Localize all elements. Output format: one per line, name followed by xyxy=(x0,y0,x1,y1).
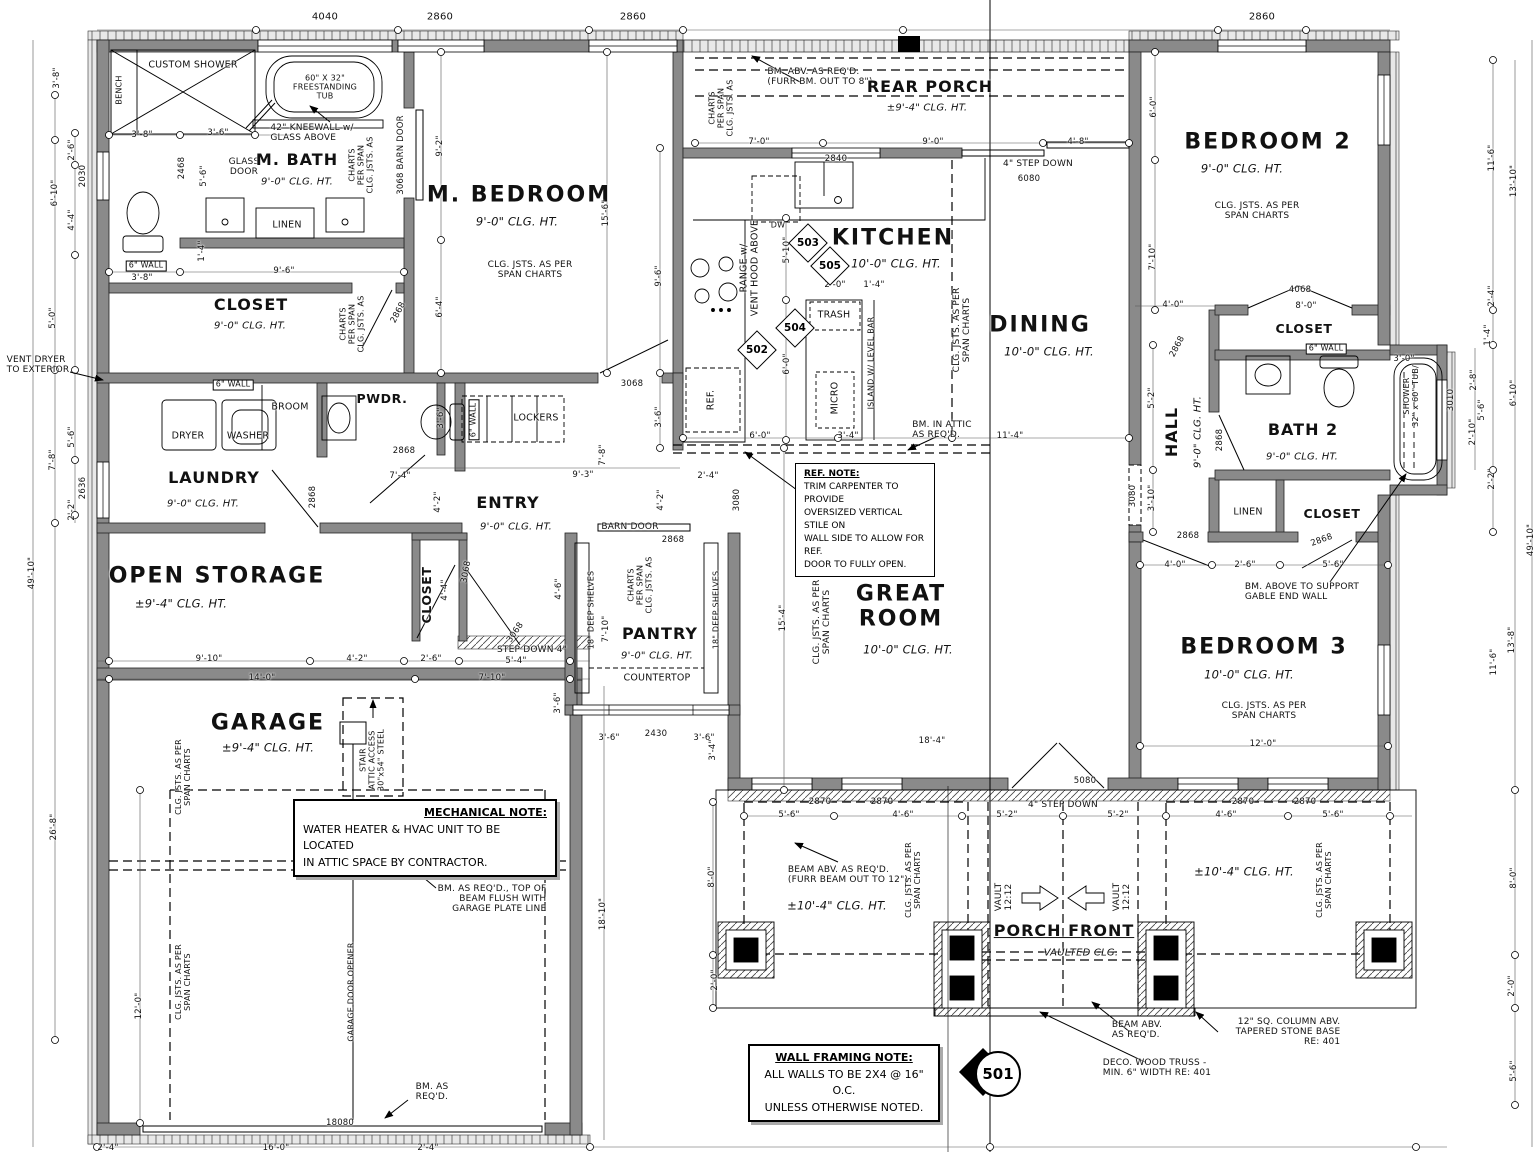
window-3010: 3010 xyxy=(1447,389,1457,411)
door-5080: 5080 xyxy=(1074,777,1096,787)
fixture-shelves: 18" DEEP SHELVES xyxy=(713,571,722,650)
fixture-linen: LINEN xyxy=(272,221,301,232)
window-2840: 2840 xyxy=(825,155,847,165)
fixture-gdo: GARAGE DOOR OPENER xyxy=(348,942,357,1041)
dim: 18'-10" xyxy=(599,898,609,930)
note-vault: VAULT 12:12 xyxy=(1112,883,1132,912)
clg-porch-right: ±10'-4" CLG. HT. xyxy=(1194,866,1294,879)
dim: 6'-0" xyxy=(1150,96,1160,117)
dim: 16'-0" xyxy=(263,1144,290,1152)
dim: 5'-0" xyxy=(49,307,59,328)
note-span-charts: CLG. JSTS. AS PER SPAN CHARTS xyxy=(812,580,832,665)
dim: 11'-6" xyxy=(1490,649,1500,676)
note-beam-abv: BEAM ABV. AS REQ'D. xyxy=(1112,1020,1162,1040)
fixture-trash: TRASH xyxy=(818,311,851,322)
dim: 11'-6" xyxy=(1488,145,1498,172)
clg-garage: ±9'-4" CLG. HT. xyxy=(222,742,314,755)
note-beam-rear: BM. ABV. AS REQ'D. (FURR BM. OUT TO 8") xyxy=(767,67,872,87)
window-2860: 2860 xyxy=(1249,11,1275,22)
door-2868: 2868 xyxy=(1169,335,1188,359)
fixture-ref: REF. xyxy=(707,390,718,410)
dim: 7'-10" xyxy=(602,616,612,643)
dim: 9'-2" xyxy=(436,135,446,156)
door-18080: 18080 xyxy=(326,1119,354,1129)
dim: 12'-0" xyxy=(1250,740,1277,750)
dim: 3'-6" xyxy=(554,692,564,713)
mechanical-note-box: MECHANICAL NOTE: WATER HEATER & HVAC UNI… xyxy=(293,799,557,877)
tag-6in-wall: 6" WALL xyxy=(213,380,254,391)
dim: 1'-4" xyxy=(863,281,884,291)
dim: 12'-0" xyxy=(135,993,145,1020)
room-open-storage: OPEN STORAGE xyxy=(109,565,326,590)
dim: 6'-10" xyxy=(1510,380,1520,407)
dim: 15'-6" xyxy=(602,200,612,227)
door-2868: 2868 xyxy=(309,486,319,508)
note-beam-gable: BM. ABOVE TO SUPPORT GABLE END WALL xyxy=(1245,582,1359,602)
room-entry-closet: CLOSET xyxy=(420,567,434,624)
note-beam-garage: BM. AS REQ'D., TOP OF BEAM FLUSH WITH GA… xyxy=(438,884,547,914)
door-3080: 3080 xyxy=(733,489,743,511)
door-3068-barn: 3068 BARN DOOR xyxy=(397,115,407,195)
dim: 13'-10" xyxy=(1510,165,1520,197)
note-step-down: 4" STEP DOWN xyxy=(1003,159,1073,169)
dim: 3'-6" xyxy=(655,406,665,427)
dim: 2'-8" xyxy=(1470,369,1480,390)
dim: 1'-4" xyxy=(198,240,208,261)
dim: 7'-4" xyxy=(389,472,410,482)
dim: 8'-0" xyxy=(708,866,718,887)
note-span-charts: CLG. JSTS. AS PER SPAN CHARTS xyxy=(175,739,193,815)
fixture-custom-shower: CUSTOM SHOWER xyxy=(148,61,237,72)
room-entry: ENTRY xyxy=(476,494,539,512)
dim: 2'-0" xyxy=(711,969,721,990)
clg-bath2: 9'-0" CLG. HT. xyxy=(1266,451,1338,462)
note-vault: VAULT 12:12 xyxy=(994,883,1014,912)
fixture-shelves: 18" DEEP SHELVES xyxy=(588,571,597,650)
room-kitchen: KITCHEN xyxy=(832,227,954,252)
door-3068: 3068 xyxy=(506,621,527,645)
note-span-charts: CHARTS PER SPAN CLG. JSTS. AS xyxy=(340,296,367,353)
dim: 4'-6" xyxy=(892,811,913,821)
dim: 3'-6" xyxy=(598,734,619,744)
dim: 5'-6" xyxy=(1510,1060,1520,1081)
room-bed3-closet: CLOSET xyxy=(1304,507,1361,521)
ref-note-box: REF. NOTE: TRIM CARPENTER TO PROVIDE OVE… xyxy=(795,463,935,577)
ref-note-line: TRIM CARPENTER TO PROVIDE xyxy=(804,481,926,507)
room-garage: GARAGE xyxy=(211,712,325,737)
ref-note-line: DOOR TO FULLY OPEN. xyxy=(804,559,926,572)
tag-6in-wall: 6" WALL xyxy=(469,400,480,441)
mechanical-note-title: MECHANICAL NOTE: xyxy=(303,805,547,822)
door-3080: 3080 xyxy=(1129,485,1139,507)
dim: 6'-10" xyxy=(51,180,61,207)
window-2430: 2430 xyxy=(645,730,667,740)
dim: 14'-0" xyxy=(249,674,276,684)
dim: 9'-6" xyxy=(655,265,665,286)
dim: 13'-8" xyxy=(1508,627,1518,654)
window-2860: 2860 xyxy=(620,11,646,22)
dim: 5'-6" xyxy=(68,426,78,447)
note-span-charts: CHARTS PER SPAN CLG. JSTS. AS xyxy=(628,557,655,614)
dim: 49'-10" xyxy=(1527,524,1536,556)
door-2868: 2868 xyxy=(1177,532,1199,542)
fixture-shower-tub: SHOWER 32" x 60" TUB/ xyxy=(1403,365,1421,427)
dim: 3'-4" xyxy=(837,432,858,442)
note-span-charts: CLG. JSTS. AS PER SPAN CHARTS xyxy=(1316,842,1334,918)
window-4040: 4040 xyxy=(312,11,338,22)
fixture-bench: BENCH xyxy=(116,75,125,104)
fixture-island: ISLAND W/ LEVEL BAR xyxy=(868,317,877,410)
door-3068: 3068 xyxy=(621,380,643,390)
dim: 5'-4" xyxy=(505,657,526,667)
room-bedroom2: BEDROOM 2 xyxy=(1184,131,1351,156)
window-2870: 2870 xyxy=(809,798,831,808)
note-span-charts: CLG. JSTS. AS PER SPAN CHARTS xyxy=(1222,701,1307,721)
fixture-range: RANGE w/ VENT HOOD ABOVE xyxy=(739,220,760,317)
room-bath2: BATH 2 xyxy=(1268,421,1338,439)
clg-m-closet: 9'-0" CLG. HT. xyxy=(214,320,286,331)
dim: 15'-4" xyxy=(779,605,789,632)
door-3068: 3068 xyxy=(460,560,473,584)
clg-pantry: 9'-0" CLG. HT. xyxy=(621,650,693,661)
tag-6in-wall: 6" WALL xyxy=(126,261,167,272)
ref-note-line: WALL SIDE TO ALLOW FOR REF. xyxy=(804,533,926,559)
door-2468: 2468 xyxy=(178,157,188,179)
room-hall: HALL xyxy=(1163,407,1181,457)
clg-entry: 9'-0" CLG. HT. xyxy=(480,521,552,532)
room-powder: PWDR. xyxy=(357,392,408,406)
floor-plan-sheet: REF. NOTE: TRIM CARPENTER TO PROVIDE OVE… xyxy=(0,0,1536,1152)
dim: 3'-8" xyxy=(131,131,152,141)
note-beam-porch: BEAM ABV. AS REQ'D. (FURR BEAM OUT TO 12… xyxy=(788,865,908,885)
clg-hall: 9'-0" CLG. HT. xyxy=(1192,396,1203,468)
wall-framing-note-line: ALL WALLS TO BE 2X4 @ 16" O.C. xyxy=(758,1067,930,1100)
door-2868: 2868 xyxy=(662,536,684,546)
dim: 8'-0" xyxy=(1295,302,1316,312)
door-2868: 2868 xyxy=(1310,533,1334,550)
dim: 2'-10" xyxy=(1469,419,1479,446)
note-attic-access: STAIR ATTIC ACCESS 30"x54" STEEL xyxy=(360,729,387,791)
clg-bedroom3: 10'-0" CLG. HT. xyxy=(1204,669,1294,682)
dim: 7'-0" xyxy=(748,138,769,148)
dim: 3'-6" xyxy=(207,129,228,139)
dim: 4'-2" xyxy=(434,491,444,512)
door-2868: 2868 xyxy=(1216,429,1226,451)
dim: 3'-4" xyxy=(709,739,719,760)
note-glass-door: GLASS DOOR xyxy=(229,157,260,177)
note-beam-attic: BM. IN ATTIC AS REQ'D. xyxy=(912,420,972,440)
dim: 4'-6" xyxy=(1215,811,1236,821)
note-span-charts: CHARTS PER SPAN CLG. JSTS. AS xyxy=(709,80,736,137)
wall-framing-note-line: UNLESS OTHERWISE NOTED. xyxy=(758,1100,930,1117)
door-barn: BARN DOOR xyxy=(601,522,658,532)
dim: 3'-6" xyxy=(437,407,447,428)
room-pantry: PANTRY xyxy=(622,625,698,643)
room-rear-porch: REAR PORCH xyxy=(867,78,993,96)
clg-porch-left: ±10'-4" CLG. HT. xyxy=(787,900,887,913)
fixture-tub: 60" X 32" FREESTANDING TUB xyxy=(293,75,357,102)
dim: 2'-2" xyxy=(1488,468,1498,489)
dim: 2'-4" xyxy=(1488,285,1498,306)
window-2870: 2870 xyxy=(1294,798,1316,808)
fixture-dw: DW xyxy=(771,222,785,231)
dim: 2'-4" xyxy=(697,472,718,482)
tag-6in-wall: 6" WALL xyxy=(1306,344,1347,355)
dim: 3'-0" xyxy=(1393,355,1414,365)
clg-bedroom2: 9'-0" CLG. HT. xyxy=(1201,163,1283,176)
clg-great-room: 10'-0" CLG. HT. xyxy=(863,644,953,657)
dim: 4'-4" xyxy=(68,209,78,230)
mechanical-note-line: IN ATTIC SPACE BY CONTRACTOR. xyxy=(303,855,547,872)
dim: 2'-4" xyxy=(417,1144,438,1152)
dim: 9'-0" xyxy=(922,138,943,148)
dim: 5'-2" xyxy=(1148,387,1158,408)
clg-rear-porch: ±9'-4" CLG. HT. xyxy=(887,102,968,113)
room-bed2-closet: CLOSET xyxy=(1276,322,1333,336)
note-step-down: STEP DOWN 4" xyxy=(497,645,567,655)
note-kneewall: 42" KNEEWALL w/ GLASS ABOVE xyxy=(270,123,353,143)
fixture-broom: BROOM xyxy=(271,403,308,414)
dim: 4'-2" xyxy=(346,655,367,665)
dim: 4'-8" xyxy=(1067,138,1088,148)
window-2870: 2870 xyxy=(871,798,893,808)
note-column: 12" SQ. COLUMN ABV. TAPERED STONE BASE R… xyxy=(1236,1017,1341,1047)
dim: 7'-10" xyxy=(1149,244,1159,271)
fixture-dryer: DRYER xyxy=(172,432,205,443)
door-2868: 2868 xyxy=(393,447,415,457)
dim: 6'-0" xyxy=(783,353,793,374)
dim: 2'-4" xyxy=(97,1144,118,1152)
fixture-micro: MICRO xyxy=(831,382,842,415)
note-span-charts: CLG. JSTS. AS PER SPAN CHARTS xyxy=(175,944,193,1020)
clg-kitchen: 10'-0" CLG. HT. xyxy=(851,258,941,271)
window-2030: 2030 xyxy=(79,165,89,187)
dim: 5'-6" xyxy=(778,811,799,821)
dim: 3'-8" xyxy=(53,67,63,88)
note-span-charts: CLG. JSTS. AS PER SPAN CHARTS xyxy=(1215,201,1300,221)
door-4068: 4068 xyxy=(1289,286,1311,296)
note-span-charts: CLG. JSTS. AS PER SPAN CHARTS xyxy=(952,288,972,373)
note-span-charts: CHARTS PER SPAN CLG. JSTS. AS xyxy=(349,137,376,194)
dim: 5'-6" xyxy=(1322,561,1343,571)
room-m-bath: M. BATH xyxy=(256,151,338,169)
ref-note-title: REF. NOTE: xyxy=(804,468,926,481)
dim: 2'-2" xyxy=(68,499,78,520)
fixture-lockers: LOCKERS xyxy=(513,414,558,425)
room-great-room: GREAT ROOM xyxy=(856,582,946,631)
window-2870: 2870 xyxy=(1232,798,1254,808)
note-span-charts: CLG. JSTS. AS PER SPAN CHARTS xyxy=(905,842,923,918)
room-m-closet: CLOSET xyxy=(214,296,288,314)
door-6080: 6080 xyxy=(1018,175,1040,185)
dim: 5'-6" xyxy=(1478,399,1488,420)
dim: 5'-2" xyxy=(1107,811,1128,821)
clg-dining: 10'-0" CLG. HT. xyxy=(1004,346,1094,359)
dim: 9'-3" xyxy=(572,471,593,481)
dim: 7'-8" xyxy=(49,449,59,470)
dim: 49'-10" xyxy=(28,557,38,589)
clg-m-bath: 9'-0" CLG. HT. xyxy=(261,176,333,187)
dim: 6'-0" xyxy=(749,432,770,442)
note-span-charts: CLG. JSTS. AS PER SPAN CHARTS xyxy=(488,260,573,280)
room-porch-front: PORCH FRONT xyxy=(994,922,1135,940)
dim: 5'-2" xyxy=(996,811,1017,821)
note-deco-truss: DECO. WOOD TRUSS - MIN. 6" WIDTH RE: 401 xyxy=(1103,1058,1211,1078)
clg-open-storage: ±9'-4" CLG. HT. xyxy=(135,598,227,611)
fixture-linen: LINEN xyxy=(1233,508,1262,519)
note-bm-reqd: BM. AS REQ'D. xyxy=(416,1082,449,1102)
clg-laundry: 9'-0" CLG. HT. xyxy=(167,498,239,509)
dim: 8'-0" xyxy=(1510,867,1520,888)
dim: 3'-10" xyxy=(1148,485,1158,512)
dim: 1'-4" xyxy=(1484,324,1494,345)
fixture-countertop: COUNTERTOP xyxy=(624,674,691,685)
dim: 4'-2" xyxy=(657,489,667,510)
note-step-down: 4" STEP DOWN xyxy=(1028,800,1098,810)
room-laundry: LAUNDRY xyxy=(168,469,260,487)
room-dining: DINING xyxy=(989,314,1091,339)
dim: 5'-6" xyxy=(1322,811,1343,821)
clg-porch-front: VAULTED CLG. xyxy=(1044,947,1118,958)
room-m-bedroom: M. BEDROOM xyxy=(427,184,611,209)
wall-framing-note-title: WALL FRAMING NOTE: xyxy=(758,1050,930,1067)
dim: 18'-4" xyxy=(919,737,946,747)
dim: 4'-6" xyxy=(555,578,565,599)
dim: 4'-4" xyxy=(441,579,451,600)
ref-note-line: OVERSIZED VERTICAL STILE ON xyxy=(804,507,926,533)
plan-labels: 4040286028602860CUSTOM SHOWERBENCH60" X … xyxy=(0,0,1536,1152)
dim: 6'-4" xyxy=(436,296,446,317)
dim: 2'-0" xyxy=(1508,975,1518,996)
dim: 3'-8" xyxy=(131,274,152,284)
dim: 2'-6" xyxy=(1234,561,1255,571)
clg-m-bedroom: 9'-0" CLG. HT. xyxy=(476,216,558,229)
dim: 2'-6" xyxy=(68,139,78,160)
dim: 4'-0" xyxy=(1164,561,1185,571)
dim: 9'-6" xyxy=(273,267,294,277)
note-vent-dryer: VENT DRYER TO EXTERIOR xyxy=(7,355,70,375)
window-2860: 2860 xyxy=(427,11,453,22)
dim: 9'-10" xyxy=(196,655,223,665)
dim: 7'-8" xyxy=(599,444,609,465)
fixture-washer: WASHER xyxy=(227,432,269,443)
mechanical-note-line: WATER HEATER & HVAC UNIT TO BE LOCATED xyxy=(303,822,547,855)
wall-framing-note-box: WALL FRAMING NOTE: ALL WALLS TO BE 2X4 @… xyxy=(748,1044,940,1122)
dim: 7'-10" xyxy=(479,674,506,684)
dim: 2'-6" xyxy=(420,655,441,665)
door-2868: 2868 xyxy=(390,301,409,325)
dim: 11'-4" xyxy=(997,432,1024,442)
dim: 26'-8" xyxy=(50,814,60,841)
room-bedroom3: BEDROOM 3 xyxy=(1180,636,1347,661)
dim: 4'-0" xyxy=(1162,301,1183,311)
window-2636: 2636 xyxy=(79,477,89,499)
dim: 5'-6" xyxy=(200,165,210,186)
